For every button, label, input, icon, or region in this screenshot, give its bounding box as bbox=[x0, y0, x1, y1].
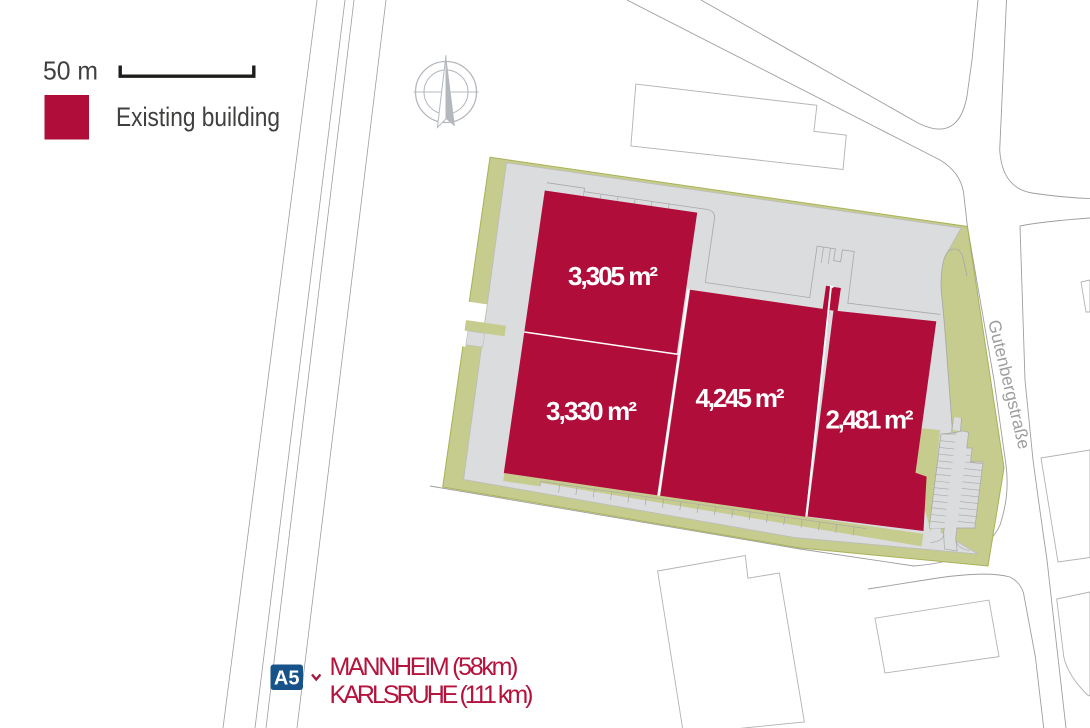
svg-text:3,305 m²: 3,305 m² bbox=[568, 261, 658, 291]
svg-text:50 m: 50 m bbox=[43, 56, 98, 86]
svg-text:4,245 m²: 4,245 m² bbox=[696, 383, 785, 413]
svg-text:Existing building: Existing building bbox=[116, 102, 280, 132]
svg-text:A5: A5 bbox=[274, 668, 300, 690]
svg-text:3,330 m²: 3,330 m² bbox=[546, 396, 637, 426]
svg-text:MANNHEIM (58km): MANNHEIM (58km) bbox=[330, 653, 519, 681]
svg-text:KARLSRUHE (111 km): KARLSRUHE (111 km) bbox=[330, 681, 534, 709]
svg-text:2,481 m²: 2,481 m² bbox=[826, 405, 914, 435]
